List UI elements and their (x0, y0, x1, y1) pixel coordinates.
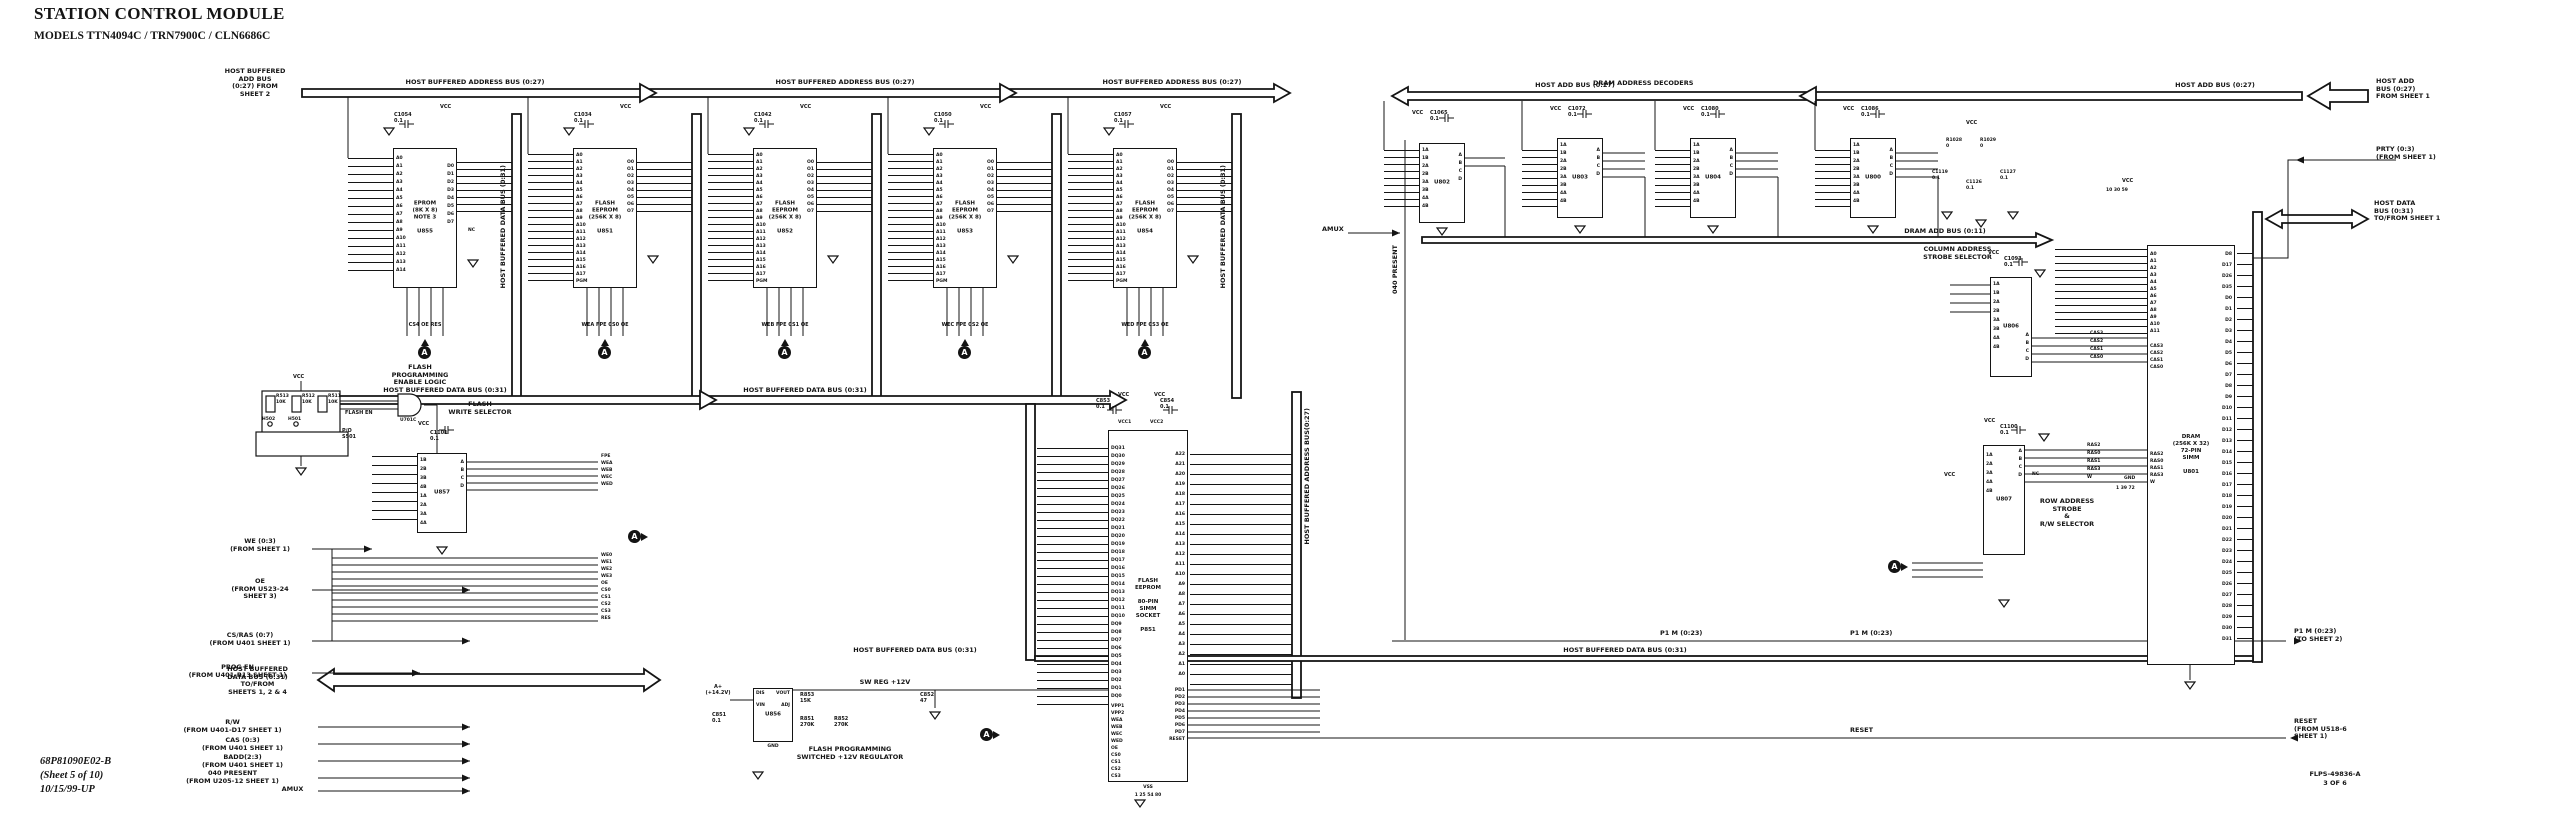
cap-c1034: C1034 0.1 (574, 112, 592, 124)
vcc1-label: VCC1 (1118, 420, 1131, 426)
cap-c1126: C1126 0.1 (1966, 180, 1982, 191)
section-row-address: ROW ADDRESS STROBE & R/W SELECTOR (2036, 498, 2098, 528)
cap-c1086: C1086 0.1 (1861, 106, 1879, 118)
flash-en-label: FLASH EN (345, 410, 373, 416)
comb-u800 (1815, 150, 1850, 207)
chip-u806-cas-selector: U806 1A1B2A2B3A3B4A4B ABCD (1990, 277, 2032, 377)
drawing-page: 3 OF 6 (2290, 780, 2380, 788)
data-comb-u851 (637, 162, 692, 213)
vcc-label: VCC (1118, 392, 1129, 398)
bundle-a-marker: A (1888, 560, 1901, 573)
vcc-label: VCC (1843, 106, 1854, 112)
flag-amux-dram: AMUX (1322, 226, 1344, 234)
bus-label-hb-data: HOST BUFFERED DATA BUS (0:31) (1540, 647, 1710, 655)
schematic-sheet: { "meta":{ "title":"STATION CONTROL MODU… (0, 0, 2560, 828)
p851-vss-label: VSS (1118, 785, 1178, 791)
chip-u804-decoder: U804 1A1B2A2B3A3B4A4B ABCD (1690, 138, 1736, 218)
u801-vcc-pins: 10 30 59 (2106, 188, 2128, 194)
vcc2-label: VCC2 (1150, 420, 1163, 426)
reset-wire-label: RESET (1850, 727, 1873, 735)
flag-prty: PRTY (0:3) (FROM SHEET 1) (2376, 146, 2436, 161)
flag-cs-ras: CS/RAS (0:7) (FROM U401 SHEET 1) (185, 632, 315, 647)
a-plus-label: A+ (+14.2V) (698, 684, 738, 696)
comb-u802 (1384, 150, 1419, 207)
u853-controls: WEC FPE CS2 OE (925, 322, 1005, 328)
bus-label-hb-addr: HOST BUFFERED ADDRESS BUS (0:27) (365, 79, 585, 87)
flag-host-buffered-add-bus: HOST BUFFERED ADD BUS (0:27) FROM SHEET … (218, 68, 292, 98)
bus-label-hb-data-vert: HOST BUFFERED DATA BUS (0:31) (1220, 165, 1228, 288)
vcc-label: VCC (1160, 104, 1171, 110)
comb-u804 (1655, 150, 1690, 207)
jumper-h502: H502 (262, 417, 275, 423)
p1m-wire-label: P1 M (0:23) (1850, 630, 1892, 638)
flag-amux: AMUX (270, 786, 315, 794)
flag-040-present: 040 PRESENT (FROM U205-12 SHEET 1) (150, 770, 315, 785)
cap-c1119: C1119 0.1 (1932, 170, 1948, 181)
bus-label-host-add: HOST ADD BUS (0:27) (2130, 82, 2300, 90)
section-flash-write-selector: FLASH WRITE SELECTOR (430, 401, 530, 416)
label-sw-reg-12v: SW REG +12V (830, 679, 940, 687)
comb-u857 (372, 456, 417, 522)
cas-output-signals: CAS3CAS2CAS1CAS0 (2090, 332, 2103, 364)
chip-u801-dram-simm: DRAM (256K X 32) 72-PIN SIMM U801 A0A1A2… (2147, 245, 2235, 665)
vcc-label: VCC (620, 104, 631, 110)
cap-c1057: C1057 0.1 (1114, 112, 1132, 124)
cap-c853: C853 0.1 (1096, 398, 1110, 410)
chip-u857-write-selector: U857 1B2B3B4B1A2A3A4A ABCD (417, 453, 467, 533)
data-comb-u853 (997, 162, 1052, 213)
bundle-a-marker: A (980, 728, 993, 741)
cap-c854: C854 0.1 (1160, 398, 1174, 410)
addr-comb-p851 (1190, 454, 1292, 685)
cap-c1065: C1065 0.1 (1430, 110, 1448, 122)
page-title: STATION CONTROL MODULE (34, 10, 285, 18)
vcc-label: VCC (1984, 418, 1995, 424)
addr-comb-u851 (528, 154, 573, 282)
vcc-label: VCC (1412, 110, 1423, 116)
bus-label-hb-data: HOST BUFFERED DATA BUS (0:31) (830, 647, 1000, 655)
flag-we03: WE (0:3) (FROM SHEET 1) (205, 538, 315, 553)
flag-rw: R/W (FROM U401-D17 SHEET 1) (150, 719, 315, 734)
chip-u855-eprom: EPROM (8K X 8) NOTE 3 U855 A0A1A2A3A4A5A… (393, 148, 457, 288)
bundle-a-marker: A (598, 346, 611, 359)
flag-oe: OE (FROM U523-24 SHEET 3) (205, 578, 315, 601)
bus-label-hb-addr: HOST BUFFERED ADDRESS BUS (0:27) (1062, 79, 1282, 87)
cap-c1093: C1093 0.1 (2004, 256, 2022, 268)
cap-c1080: C1080 0.1 (1701, 106, 1719, 118)
bus-label-hb-addr-vert: HOST BUFFERED ADDRESS BUS(0:27) (1304, 408, 1312, 545)
res-r852: R852 270K (834, 716, 848, 728)
p1m-wire-label: P1 M (0:23) (1660, 630, 1702, 638)
vcc-label: VCC (1944, 472, 1955, 478)
addr-comb-u855 (348, 158, 393, 273)
u801-gnd-pins: 1 39 72 (2116, 486, 2135, 492)
section-vpp-regulator: FLASH PROGRAMMING SWITCHED +12V REGULATO… (770, 746, 930, 761)
cap-c852: C852 47 (920, 692, 934, 704)
nc-label: NC (2032, 472, 2039, 478)
bus-label-hb-data: HOST BUFFERED DATA BUS (0:31) (360, 387, 530, 395)
bundle-a-marker: A (418, 346, 431, 359)
comb-u803 (1522, 150, 1557, 207)
vcc-label: VCC (293, 374, 304, 380)
gate-u701c: U701C (400, 418, 416, 424)
chip-u851-flash: FLASH EEPROM (256K X 8) U851 A0A1A2A3A4A… (573, 148, 637, 288)
chip-u853-flash: FLASH EEPROM (256K X 8) U853 A0A1A2A3A4A… (933, 148, 997, 288)
cap-c851: C851 0.1 (712, 712, 726, 724)
bus-label-hb-data: HOST BUFFERED DATA BUS (0:31) (720, 387, 890, 395)
vcc-label: VCC (800, 104, 811, 110)
vcc-label: VCC (1988, 250, 1999, 256)
flag-hbdb-tofrom: HOST BUFFERED DATA BUS (0:31) TO/FROM SH… (200, 666, 315, 696)
chip-u800-decoder: U800 1A1B2A2B3A3B4A4B ABCD (1850, 138, 1896, 218)
flag-p1m-right: P1 M (0:23) (TO SHEET 2) (2294, 628, 2342, 643)
res-r513: R513 10K (276, 394, 289, 405)
chip-p851-simm-socket: FLASH EEPROM 80-PIN SIMM SOCKET P851 DQ3… (1108, 430, 1188, 782)
u854-controls: WED FPE CS3 OE (1105, 322, 1185, 328)
vcc-label: VCC (1966, 120, 1977, 126)
bundle-a-marker: A (628, 530, 641, 543)
u855-controls: CS4 OE RES (385, 322, 465, 328)
vcc-label: VCC (1683, 106, 1694, 112)
chip-u854-flash: FLASH EEPROM (256K X 8) U854 A0A1A2A3A4A… (1113, 148, 1177, 288)
sheet-number: (Sheet 5 of 10) (40, 769, 103, 782)
nc-label: NC (468, 228, 475, 234)
cap-c1050: C1050 0.1 (934, 112, 952, 124)
chip-u852-flash: FLASH EEPROM (256K X 8) U852 A0A1A2A3A4A… (753, 148, 817, 288)
res-r1029: R1029 0 (1980, 138, 1996, 149)
res-r511: R511 10K (328, 394, 341, 405)
vcc-label: VCC (440, 104, 451, 110)
res-r512: R512 10K (302, 394, 315, 405)
vcc-label: VCC (1550, 106, 1561, 112)
chip-u807-ras-selector: U807 1A2A3A4A4B ABCD (1983, 445, 2025, 555)
chip-u856-regulator: U856 DISVIN VOUTADJ (753, 688, 793, 742)
jumper-h501: H501 (288, 417, 301, 423)
cap-c1101: C1101 0.1 (430, 430, 448, 442)
vcc-label: VCC (980, 104, 991, 110)
res-r853: R853 15K (800, 692, 814, 704)
cap-c1072: C1072 0.1 (1568, 106, 1586, 118)
chip-u802-decoder: U802 1A1B2A2B3A3B4A4B ABCD (1419, 143, 1465, 223)
page-subtitle: MODELS TTN4094C / TRN7900C / CLN6686C (34, 33, 270, 41)
u857-output-signals: FPEWEAWEBWECWED (601, 455, 613, 490)
cap-c1100: C1100 0.1 (2000, 424, 2018, 436)
chip-u803-decoder: U803 1A1B2A2B3A3B4A4B ABCD (1557, 138, 1603, 218)
bundle-a-marker: A (1138, 346, 1151, 359)
flag-badd: BADD(2:3) (FROM U401 SHEET 1) (170, 754, 315, 769)
res-r1028: R1028 0 (1946, 138, 1962, 149)
drawing-ref: FLPS-49836-A (2290, 771, 2380, 779)
revision: 10/15/99-UP (40, 783, 95, 796)
ras-output-signals: RAS2RAS0RAS1RAS3W (2087, 444, 2100, 484)
doc-number: 68P81090E02-B (40, 755, 111, 768)
bundle-a-marker: A (958, 346, 971, 359)
cap-c1042: C1042 0.1 (754, 112, 772, 124)
vcc-label: VCC (418, 421, 429, 427)
dram-data-comb (2237, 253, 2253, 649)
vcc-label: VCC (2122, 178, 2133, 184)
flag-reset-right: RESET (FROM U518-6 SHEET 1) (2294, 718, 2347, 741)
addr-comb-u853 (888, 154, 933, 282)
bus-label-dram-add: DRAM ADD BUS (0:11) (1880, 228, 2010, 236)
flag-host-add-from-sheet1: HOST ADD BUS (0:27) FROM SHEET 1 (2376, 78, 2430, 101)
switch-s501: P/O S501 (342, 428, 356, 440)
data-comb-p851 (1037, 448, 1108, 705)
cap-c1127: C1127 0.1 (2000, 170, 2016, 181)
flag-cas03: CAS (0:3) (FROM U401 SHEET 1) (170, 737, 315, 752)
section-dram-decoders: DRAM ADDRESS DECODERS (1593, 80, 1693, 88)
p851-vss-pins: 1 25 54 80 (1108, 793, 1188, 799)
u851-controls: WEA FPE CS0 OE (565, 322, 645, 328)
u801-gnd-label: GND (2124, 476, 2135, 482)
data-comb-u852 (817, 162, 872, 213)
flash-bank-control-signals: WE0WE1WE2WE3OECS0CS1CS2CS3RES (601, 554, 612, 624)
flag-host-data-right: HOST DATA BUS (0:31) TO/FROM SHEET 1 (2374, 200, 2440, 223)
res-r851: R851 270K (800, 716, 814, 728)
bus-label-hb-addr: HOST BUFFERED ADDRESS BUS (0:27) (735, 79, 955, 87)
addr-comb-u852 (708, 154, 753, 282)
vcc-label: VCC (1154, 392, 1165, 398)
addr-comb-u854 (1068, 154, 1113, 282)
section-flash-prog-enable: FLASH PROGRAMMING ENABLE LOGIC (380, 364, 460, 387)
bundle-a-marker: A (778, 346, 791, 359)
u852-controls: WEB FPE CS1 OE (745, 322, 825, 328)
label-040-present-vert: 040 PRESENT (1392, 245, 1400, 294)
cap-c1054: C1054 0.1 (394, 112, 412, 124)
bus-label-hb-data-vert: HOST BUFFERED DATA BUS (0:31) (500, 165, 508, 288)
dram-addr-comb (2055, 249, 2147, 334)
